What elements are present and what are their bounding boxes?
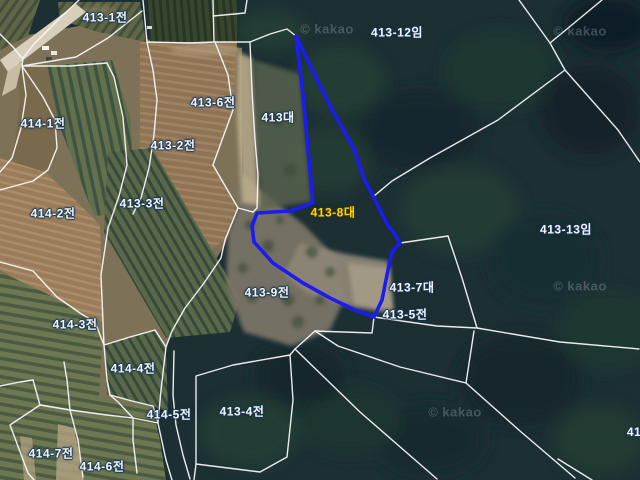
vehicle — [51, 51, 57, 55]
parcel-label-414-6: 414-6전 — [80, 458, 125, 475]
kakao-watermark: © kakao — [428, 405, 482, 420]
parcel-label-413-8-selected: 413-8대 — [311, 204, 356, 221]
vehicle — [46, 57, 52, 61]
parcel-label-413-5: 413-5전 — [383, 306, 428, 323]
field-top-center — [148, 0, 237, 42]
parcel-label-413-4: 413-4전 — [220, 403, 265, 420]
parcel-label-414-2: 414-2전 — [31, 205, 76, 222]
kakao-watermark: © kakao — [300, 22, 354, 37]
parcel-label-414-5: 414-5전 — [147, 406, 192, 423]
parcel-boundary — [213, 0, 214, 42]
vehicle — [42, 46, 49, 50]
parcel-label-414-3: 414-3전 — [53, 316, 98, 333]
parcel-label-413-3: 413-3전 — [120, 195, 165, 212]
kakao-watermark: © kakao — [553, 24, 607, 39]
parcel-label-413-13: 413-13임 — [540, 221, 592, 238]
parcel-label-414-1: 414-1전 — [21, 115, 66, 132]
parcel-label-413-9: 413-9전 — [245, 284, 290, 301]
parcel-label-413-2: 413-2전 — [151, 137, 196, 154]
parcel-label-413: 413대 — [261, 109, 294, 126]
parcel-label-413-12: 413-12임 — [371, 24, 423, 41]
satellite-imagery — [0, 0, 640, 480]
map-canvas[interactable]: © kakao © kakao © kakao © kakao 413-1전 4… — [0, 0, 640, 480]
parcel-label-414-4: 414-4전 — [111, 360, 156, 377]
kakao-watermark: © kakao — [553, 279, 607, 294]
parcel-label-414-7: 414-7전 — [29, 445, 74, 462]
parcel-label-413-7: 413-7대 — [390, 279, 435, 296]
parcel-label-41-partial: 41 — [627, 425, 640, 439]
parcel-label-413-6: 413-6전 — [191, 94, 236, 111]
parcel-label-413-1: 413-1전 — [83, 9, 128, 26]
building — [147, 26, 152, 29]
